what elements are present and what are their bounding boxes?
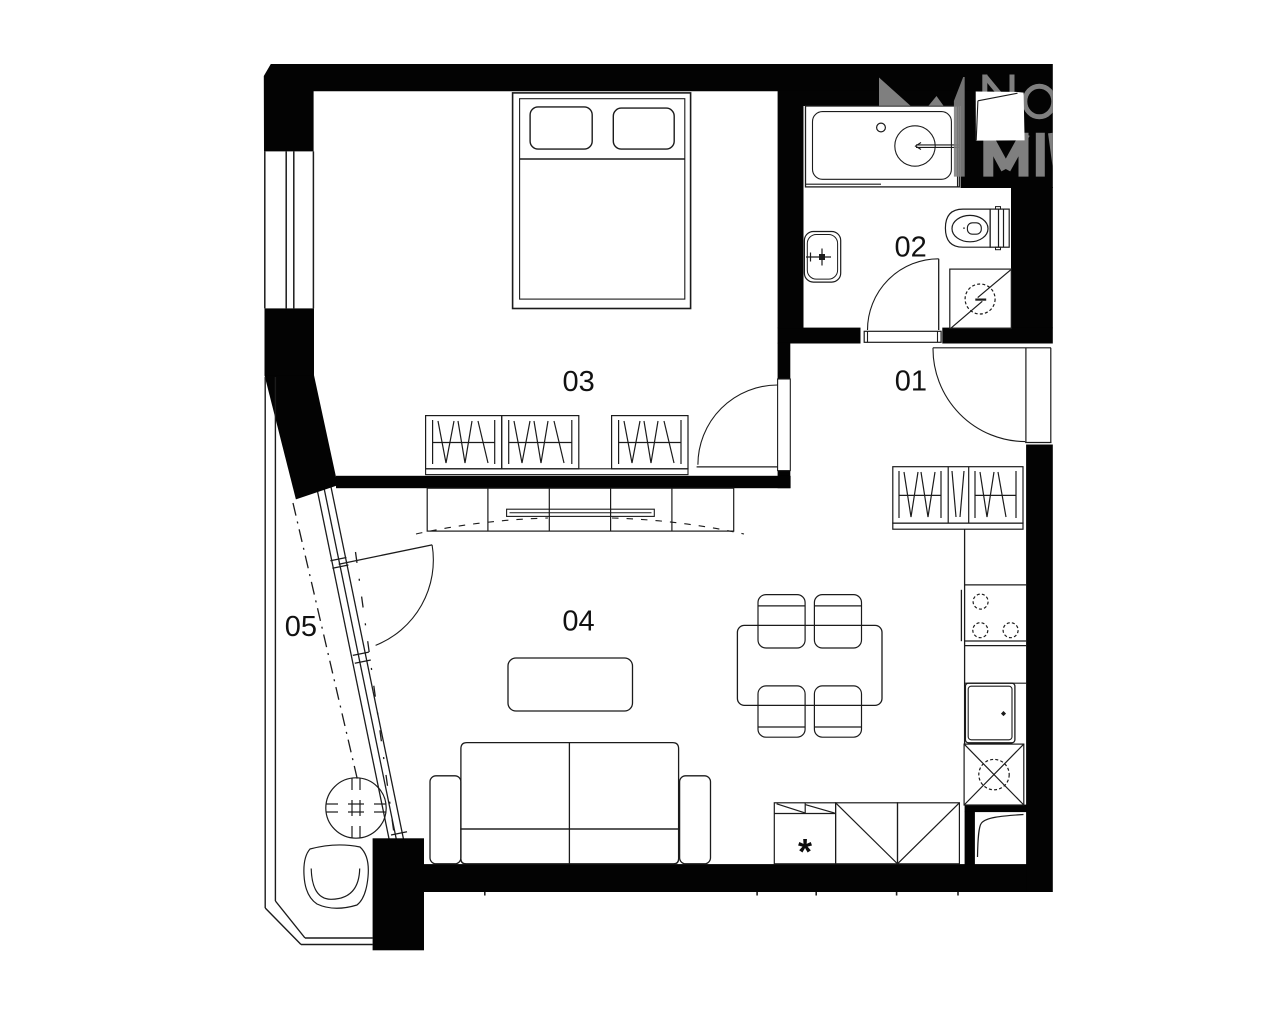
svg-text:03: 03 — [563, 366, 595, 398]
svg-text:04: 04 — [562, 606, 594, 638]
svg-text:01: 01 — [895, 366, 927, 398]
svg-text:*: * — [798, 831, 812, 872]
svg-text:02: 02 — [895, 232, 927, 264]
svg-text:05: 05 — [285, 611, 317, 643]
